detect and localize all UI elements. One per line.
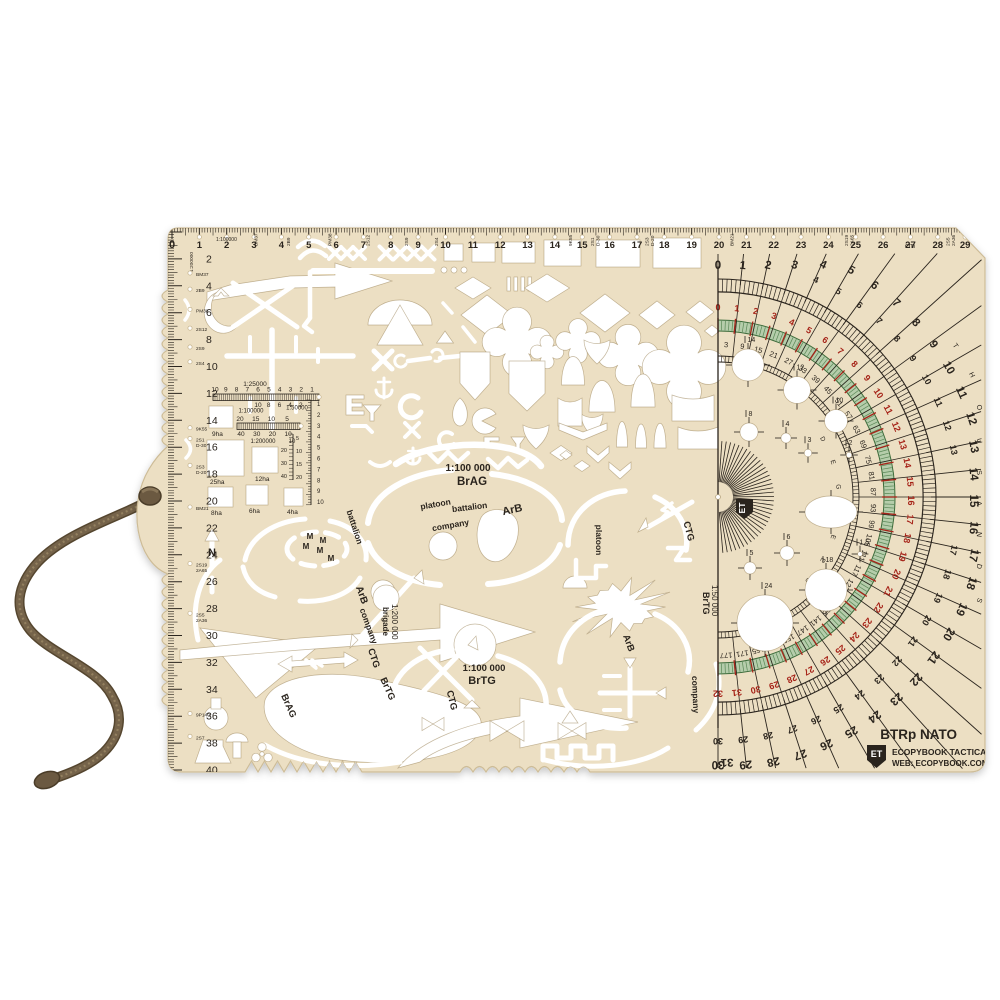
ruler-unit-label: cm [905,241,915,250]
template-circle [846,452,852,458]
lanyard-cord [20,500,150,792]
label-text: 6 [256,387,260,394]
punch-hole [744,235,748,239]
cutout-area-square [284,488,303,506]
artillery-mark-label: 2S4 [196,361,205,367]
degree-number: 99 [866,520,876,530]
punch-hole [188,426,192,430]
nato-number: 17 [905,514,916,525]
label-text: 8 [235,387,239,394]
ruler-number: 13 [522,240,533,251]
label-text: 1:200 000 [390,604,399,640]
cutout-rect [514,277,518,291]
cord-end-knot [32,768,62,791]
template-circle [805,569,847,611]
artillery-mark-label: 2S5 [945,237,951,246]
punch-hole [307,235,311,239]
nato-number: 15 [905,476,916,487]
degree-number: 87 [869,487,878,496]
cutout-banner [672,395,714,421]
ruler-number: 26 [206,576,218,588]
nato-number: 14 [901,457,913,469]
cutout-circle [451,267,457,273]
cutout-rect [507,277,511,291]
artillery-mark-label: 2S4 [434,237,440,246]
label-text: company [690,676,701,714]
punch-hole [635,235,639,239]
punch-hole [188,307,192,311]
punch-hole [188,505,192,509]
ruler-number: 1 [197,240,203,251]
mini-scale-label: 1:50000 [286,406,308,412]
circle-diameter-label: 1,5 [860,540,870,547]
ruler-number: 29 [960,240,971,251]
ruler-number: 19 [686,240,697,251]
cutout-trefoil-blade [264,753,272,761]
cutout-trefoil-blade [252,753,260,761]
template-circle [732,349,764,381]
punch-hole [936,235,940,239]
nato-number: 18 [901,532,913,544]
punch-hole [416,235,420,239]
template-circle [781,433,791,443]
punch-hole [188,561,192,565]
label-text: 9 [224,387,228,394]
label-text: 1:100 000 [463,663,506,674]
area-square-label: 6ha [249,508,260,515]
brand-company: ECOPYBOOK TACTICAL [892,747,991,757]
label-text: 20 [296,475,302,481]
label-text: 5 [267,387,271,394]
mils-number: 29 [738,734,749,745]
template-circle [780,546,794,560]
ruler-number: 17 [632,240,643,251]
ruler-number: 14 [550,240,561,251]
template-circle [784,377,811,404]
brand-logo-text: ET [871,749,883,759]
cutout-circle [461,267,467,273]
artillery-mark-label: 2S1 [196,437,205,443]
et-logo-text: ET [737,502,747,514]
brand-web: WEB: ECOPYBOOK.COM.UA [892,759,1000,768]
ruler-number: 23 [796,240,807,251]
punch-hole [317,395,321,399]
punch-hole [299,424,303,428]
label-text: 15 [252,416,260,423]
artillery-mark-label: PM38 [327,233,333,246]
punch-hole [799,235,803,239]
artillery-mark-label: 2B9 [286,237,292,246]
mine-M-label: M [307,532,314,541]
ruler-number: 22 [206,522,218,534]
label-text: 1 [310,387,314,394]
artillery-mark-label: 2A36 [196,618,208,624]
ruler-number: 32 [206,657,218,669]
artillery-mark-label: 2S9 [196,346,205,352]
label-text: 40 [281,474,287,480]
degree-number: 3 [724,340,729,349]
artillery-mark-label: BM37 [253,233,259,246]
punch-hole [188,711,192,715]
punch-hole [580,235,584,239]
ruler-number: 21 [741,240,752,251]
circle-diameter-label: 14 [748,337,756,344]
punch-hole [188,345,192,349]
label-text: 20 [236,416,244,423]
template-circle [825,410,848,433]
punch-hole [197,235,201,239]
nato-number: 1 [734,303,740,313]
mine-M-label: M [303,542,310,551]
ruler-scale-label: 1:200000 [189,252,195,272]
mils-number: 28 [762,730,774,742]
ruler-scale-label: 1:100000 [216,237,237,243]
label-text: 10 [289,439,296,445]
artillery-mark-label: 2S19 [196,563,208,569]
artillery-mark-label: 2S19 [844,234,850,246]
protractor-scale-sub: BrTG [701,592,711,615]
area-square-label: 9ha [212,431,223,438]
label-text: brigade [381,607,390,636]
ruler-number: 28 [206,603,218,615]
artillery-mark-label: 2S12 [196,327,208,333]
artillery-mark-label: 2S3 [196,464,205,470]
label-text: 8 [267,402,271,409]
degrees-letter: G [834,484,841,490]
artillery-mark-label: 2S1 [590,237,596,246]
ruler-number: 4 [206,280,212,292]
template-circle [740,423,758,441]
circle-diameter-label: 8 [749,411,753,418]
degree-number: 177 [720,650,733,660]
artillery-mark-label: 2A36 [951,234,957,246]
mine-M-label: M [320,536,327,545]
model-name: BTRp NATO [880,727,957,742]
ruler-number: 20 [206,496,218,508]
mils-number: 17 [948,544,960,556]
label-text: 10 [211,387,219,394]
artillery-mark-label: 2A65 [196,568,208,574]
cutout-bar [440,356,460,358]
artillery-mark-label: D-20 [650,235,656,246]
template-circle [858,552,863,557]
circle-diameter-label: 10 [836,398,844,405]
circle-diameter-label: 3 [808,437,812,444]
artillery-mark-label: BM37 [196,272,209,278]
mine-M-label: M [317,546,324,555]
punch-hole [662,235,666,239]
circle-diameter-label: 24 [765,583,773,590]
thousands-letter: A [975,501,982,506]
artillery-mark-label: 2S7 [196,735,205,741]
artillery-mark-label: 9K55 [568,234,574,246]
artillery-mark-label: BM21 [729,233,735,246]
circle-diameter-label: 2 [849,440,853,447]
artillery-mark-label: PM38 [196,308,209,314]
ruler-number: 10 [206,361,218,373]
ruler-number: 20 [714,240,725,251]
ruler-number: 9 [416,240,421,251]
mils-number: 13 [948,444,960,456]
label-text: 3 [289,387,293,394]
ruler-number: 6 [333,240,338,251]
ruler-number: 15 [577,240,588,251]
template-circle [804,449,812,457]
punch-hole [188,734,192,738]
ruler-number: 22 [768,240,779,251]
artillery-mark-label: 2S9 [404,237,410,246]
cutout-area-square [252,447,278,473]
ruler-number: 24 [823,240,834,251]
label-text: 5 [296,436,299,442]
ruler-number: 16 [604,240,615,251]
ruler-number: 14 [206,415,218,427]
label-text: 10 [296,449,302,455]
mine-M-label: M [328,554,335,563]
area-square-label: 4ha [287,509,298,516]
artillery-mark-label: D-30 [196,443,207,449]
degree-number: 81 [866,471,876,481]
cutout-trefoil-center [260,752,264,756]
label-text: platoon [594,525,604,556]
label-text: 10 [284,431,292,438]
label-text: 2 [299,387,303,394]
cutout-bottle-neck [211,698,221,709]
label-text: 10 [317,500,324,506]
circle-diameter-label: 6 [787,534,791,541]
punch-hole [188,436,192,440]
punch-hole [188,287,192,291]
stencil-scene: BTRp NATO 012345678910111213141516171819… [0,0,1000,1000]
artillery-mark-label: BM21 [196,506,209,512]
punch-hole [525,235,529,239]
cutout-banner [558,398,582,426]
nato-number: 16 [906,495,916,505]
punch-hole [553,235,557,239]
punch-hole [188,611,192,615]
label-text: BrTG [468,675,496,687]
pivot-hole [716,495,721,500]
punch-hole [188,463,192,467]
label-text: 20 [269,431,277,438]
punch-hole [188,326,192,330]
punch-hole [361,235,365,239]
ruler-number: 2 [206,253,212,265]
cutout-rect [521,277,525,291]
label-text: 10 [268,416,276,423]
mini-scale-label: 1:100000 [238,409,264,415]
label-text: 40 [237,431,245,438]
ruler-number: 8 [206,334,212,346]
punch-hole [717,235,721,239]
template-circle [737,595,793,651]
artillery-mark-label: 2S5 [196,612,205,618]
template-ellipse [805,496,857,528]
cutout-E [346,395,364,415]
label-text: BrAG [457,476,487,488]
cord-body [20,500,150,780]
punch-hole [881,235,885,239]
cutout-mushroom-stem [233,742,241,758]
punch-hole [690,235,694,239]
punch-hole [826,235,830,239]
product-photo-stage: BTRp NATO 012345678910111213141516171819… [0,0,1000,1000]
circle-diameter-label: 5 [750,550,754,557]
label-text: 5 [285,416,289,423]
nato-number: 31 [731,687,742,698]
punch-hole [498,235,502,239]
ruler-number: 5 [306,240,312,251]
ruler-number: 12 [495,240,506,251]
template-circle [744,562,756,574]
artillery-mark-label: 9K55 [196,427,208,433]
punch-hole [279,235,283,239]
artillery-mark-label: 2B9 [196,288,205,294]
ruler-number: 40 [206,765,218,777]
ruler-number: 4 [279,240,285,251]
ruler-number: 28 [933,240,944,251]
punch-hole [443,235,447,239]
circle-diameter-label: 18 [826,557,834,564]
artillery-mark-label: D-20 [196,470,207,476]
circle-diameter-label: 4 [786,421,790,428]
artillery-mark-label: 9P140 [196,713,210,719]
cutout-bar [408,358,430,361]
nato-number: 30 [750,684,762,696]
punch-hole [608,235,612,239]
ruler-number: 0 [169,239,175,251]
ruler-number: 18 [659,240,670,251]
label-text: 4 [278,387,282,394]
ruler-number: 10 [440,240,451,251]
label-text: 6 [278,402,282,409]
label-text: 20 [281,448,287,454]
label-text: 15 [296,462,302,468]
area-square-label: 25ha [210,479,225,486]
ruler-number: 11 [468,240,479,251]
artillery-mark-label: 2A65 [850,234,856,246]
label-text: 1:100 000 [445,463,490,474]
cutout-area-square [246,485,268,505]
artillery-mark-label: 2S3 [645,237,651,246]
mils-number: 30 [713,736,723,746]
ruler-number: 38 [206,738,218,750]
ruler-number: 34 [206,684,218,696]
label-text: 7 [246,387,250,394]
area-square-label: 8ha [211,510,222,517]
punch-hole [188,271,192,275]
label-text: 30 [281,461,287,467]
mils-number: 29 [739,757,753,770]
punch-hole [389,235,393,239]
ruler-number: 26 [878,240,889,251]
ruler-number: 30 [206,630,218,642]
thousands-letter: N [975,531,983,537]
label-text: 30 [253,431,261,438]
cutout-circle [441,267,447,273]
mils-number: 31 [720,756,734,768]
punch-hole [772,235,776,239]
punch-hole [334,235,338,239]
artillery-mark-label: 2S12 [366,234,372,246]
artillery-mark-label: D-30 [595,235,601,246]
ruler-number: 7 [361,240,366,251]
degree-number: 93 [869,504,878,513]
cutout-circle [429,532,457,560]
punch-hole [471,235,475,239]
punch-hole [188,360,192,364]
ruler-number: 16 [206,442,218,454]
ruler-number: 8 [388,240,393,251]
circle-diameter-label: 12 [797,365,805,372]
area-square-label: 12ha [255,476,270,483]
mini-scale-label: 1:200000 [250,439,276,445]
label-text: N [208,547,216,559]
cutout-trefoil-blade [258,743,266,751]
punch-hole [908,235,912,239]
